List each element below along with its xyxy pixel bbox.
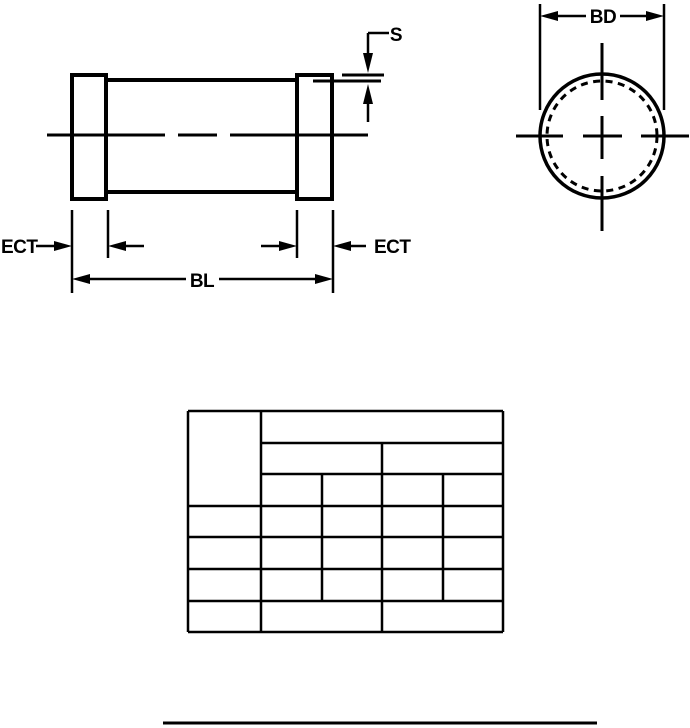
ect-left-inner-arrowhead [108,241,126,251]
ect-right-label: ECT [374,237,411,258]
bl-left-arrowhead [72,274,90,284]
dimension-table [188,411,503,632]
ect-left-label: ECT [1,237,38,258]
bd-label: BD [590,7,616,28]
s-lower-arrowhead [363,84,373,104]
ect-left-outer-arrowhead [54,241,72,251]
ect-right-outer-arrowhead [333,241,351,251]
right-end-cap [297,75,332,199]
ect-right-inner-arrowhead [279,241,297,251]
bl-right-arrowhead [315,274,333,284]
side-view: S ECT E [1,25,411,293]
end-view: BD [516,4,689,231]
drawing-page: S ECT E [0,0,690,728]
bl-dimension: BL [72,271,333,292]
s-upper-arrowhead [363,53,373,73]
s-dimension-label: S [390,25,402,46]
bd-right-arrowhead [646,11,664,21]
bd-left-arrowhead [540,11,558,21]
left-end-cap [72,75,106,199]
technical-drawing-canvas: S ECT E [0,0,690,728]
bl-label: BL [190,271,215,292]
ect-right-dimension: ECT [261,237,411,258]
